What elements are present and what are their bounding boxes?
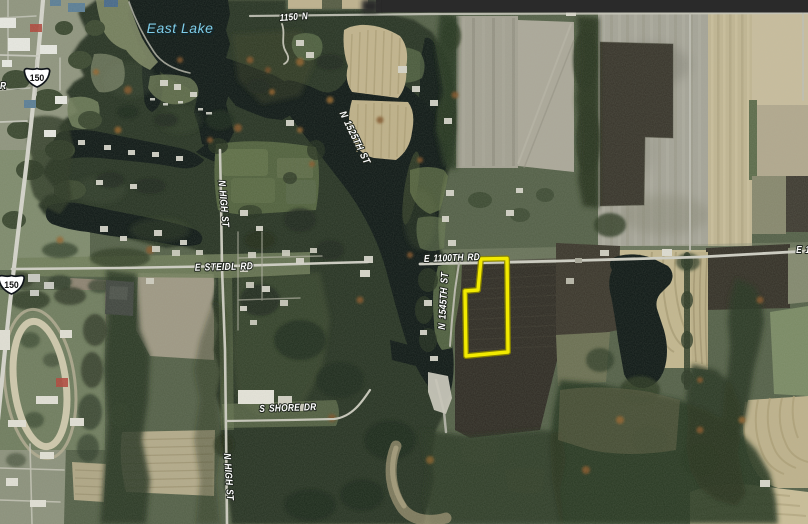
svg-text:S SHORE DR: S SHORE DR — [259, 401, 317, 414]
svg-text:E 1100TH RD: E 1100TH RD — [424, 251, 480, 264]
svg-text:150: 150 — [4, 280, 19, 290]
svg-text:150: 150 — [30, 73, 45, 83]
svg-text:1150 N: 1150 N — [279, 10, 308, 23]
svg-text:E STEIDL RD: E STEIDL RD — [195, 259, 254, 272]
svg-text:E 1: E 1 — [796, 244, 808, 255]
svg-text:East Lake: East Lake — [147, 20, 214, 36]
svg-text:R: R — [0, 80, 6, 91]
